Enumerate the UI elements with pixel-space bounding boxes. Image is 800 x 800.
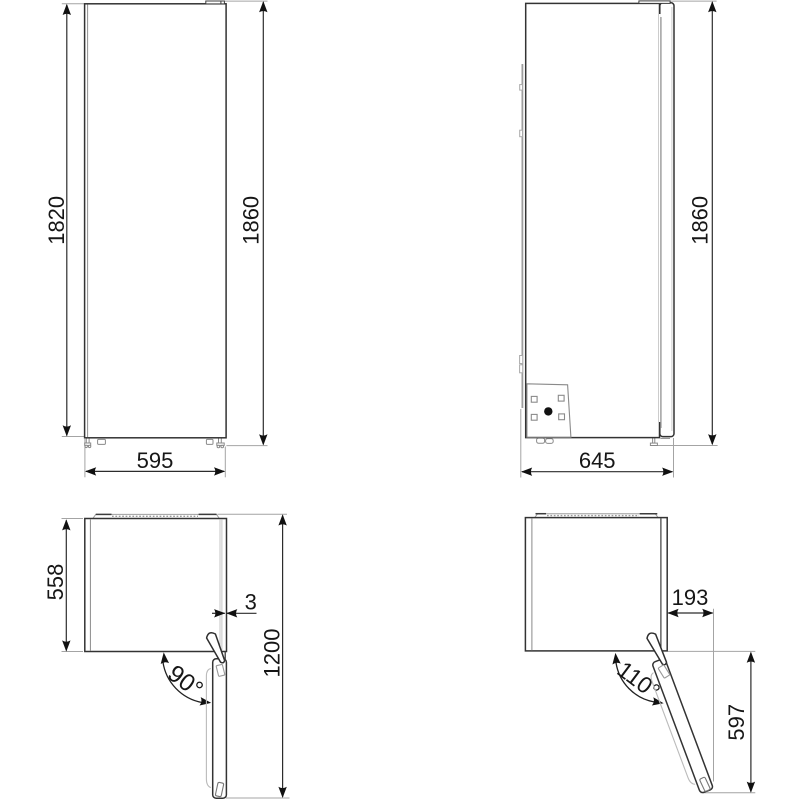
svg-text:1820: 1820 [44, 196, 69, 245]
svg-text:645: 645 [579, 448, 616, 473]
svg-text:1200: 1200 [259, 629, 284, 678]
svg-text:3: 3 [245, 590, 257, 615]
svg-text:90°: 90° [162, 660, 207, 704]
svg-text:193: 193 [672, 585, 709, 610]
svg-text:597: 597 [724, 704, 749, 741]
svg-text:558: 558 [43, 564, 68, 601]
svg-text:595: 595 [137, 448, 174, 473]
svg-text:1860: 1860 [239, 196, 264, 245]
svg-text:1860: 1860 [688, 196, 713, 245]
